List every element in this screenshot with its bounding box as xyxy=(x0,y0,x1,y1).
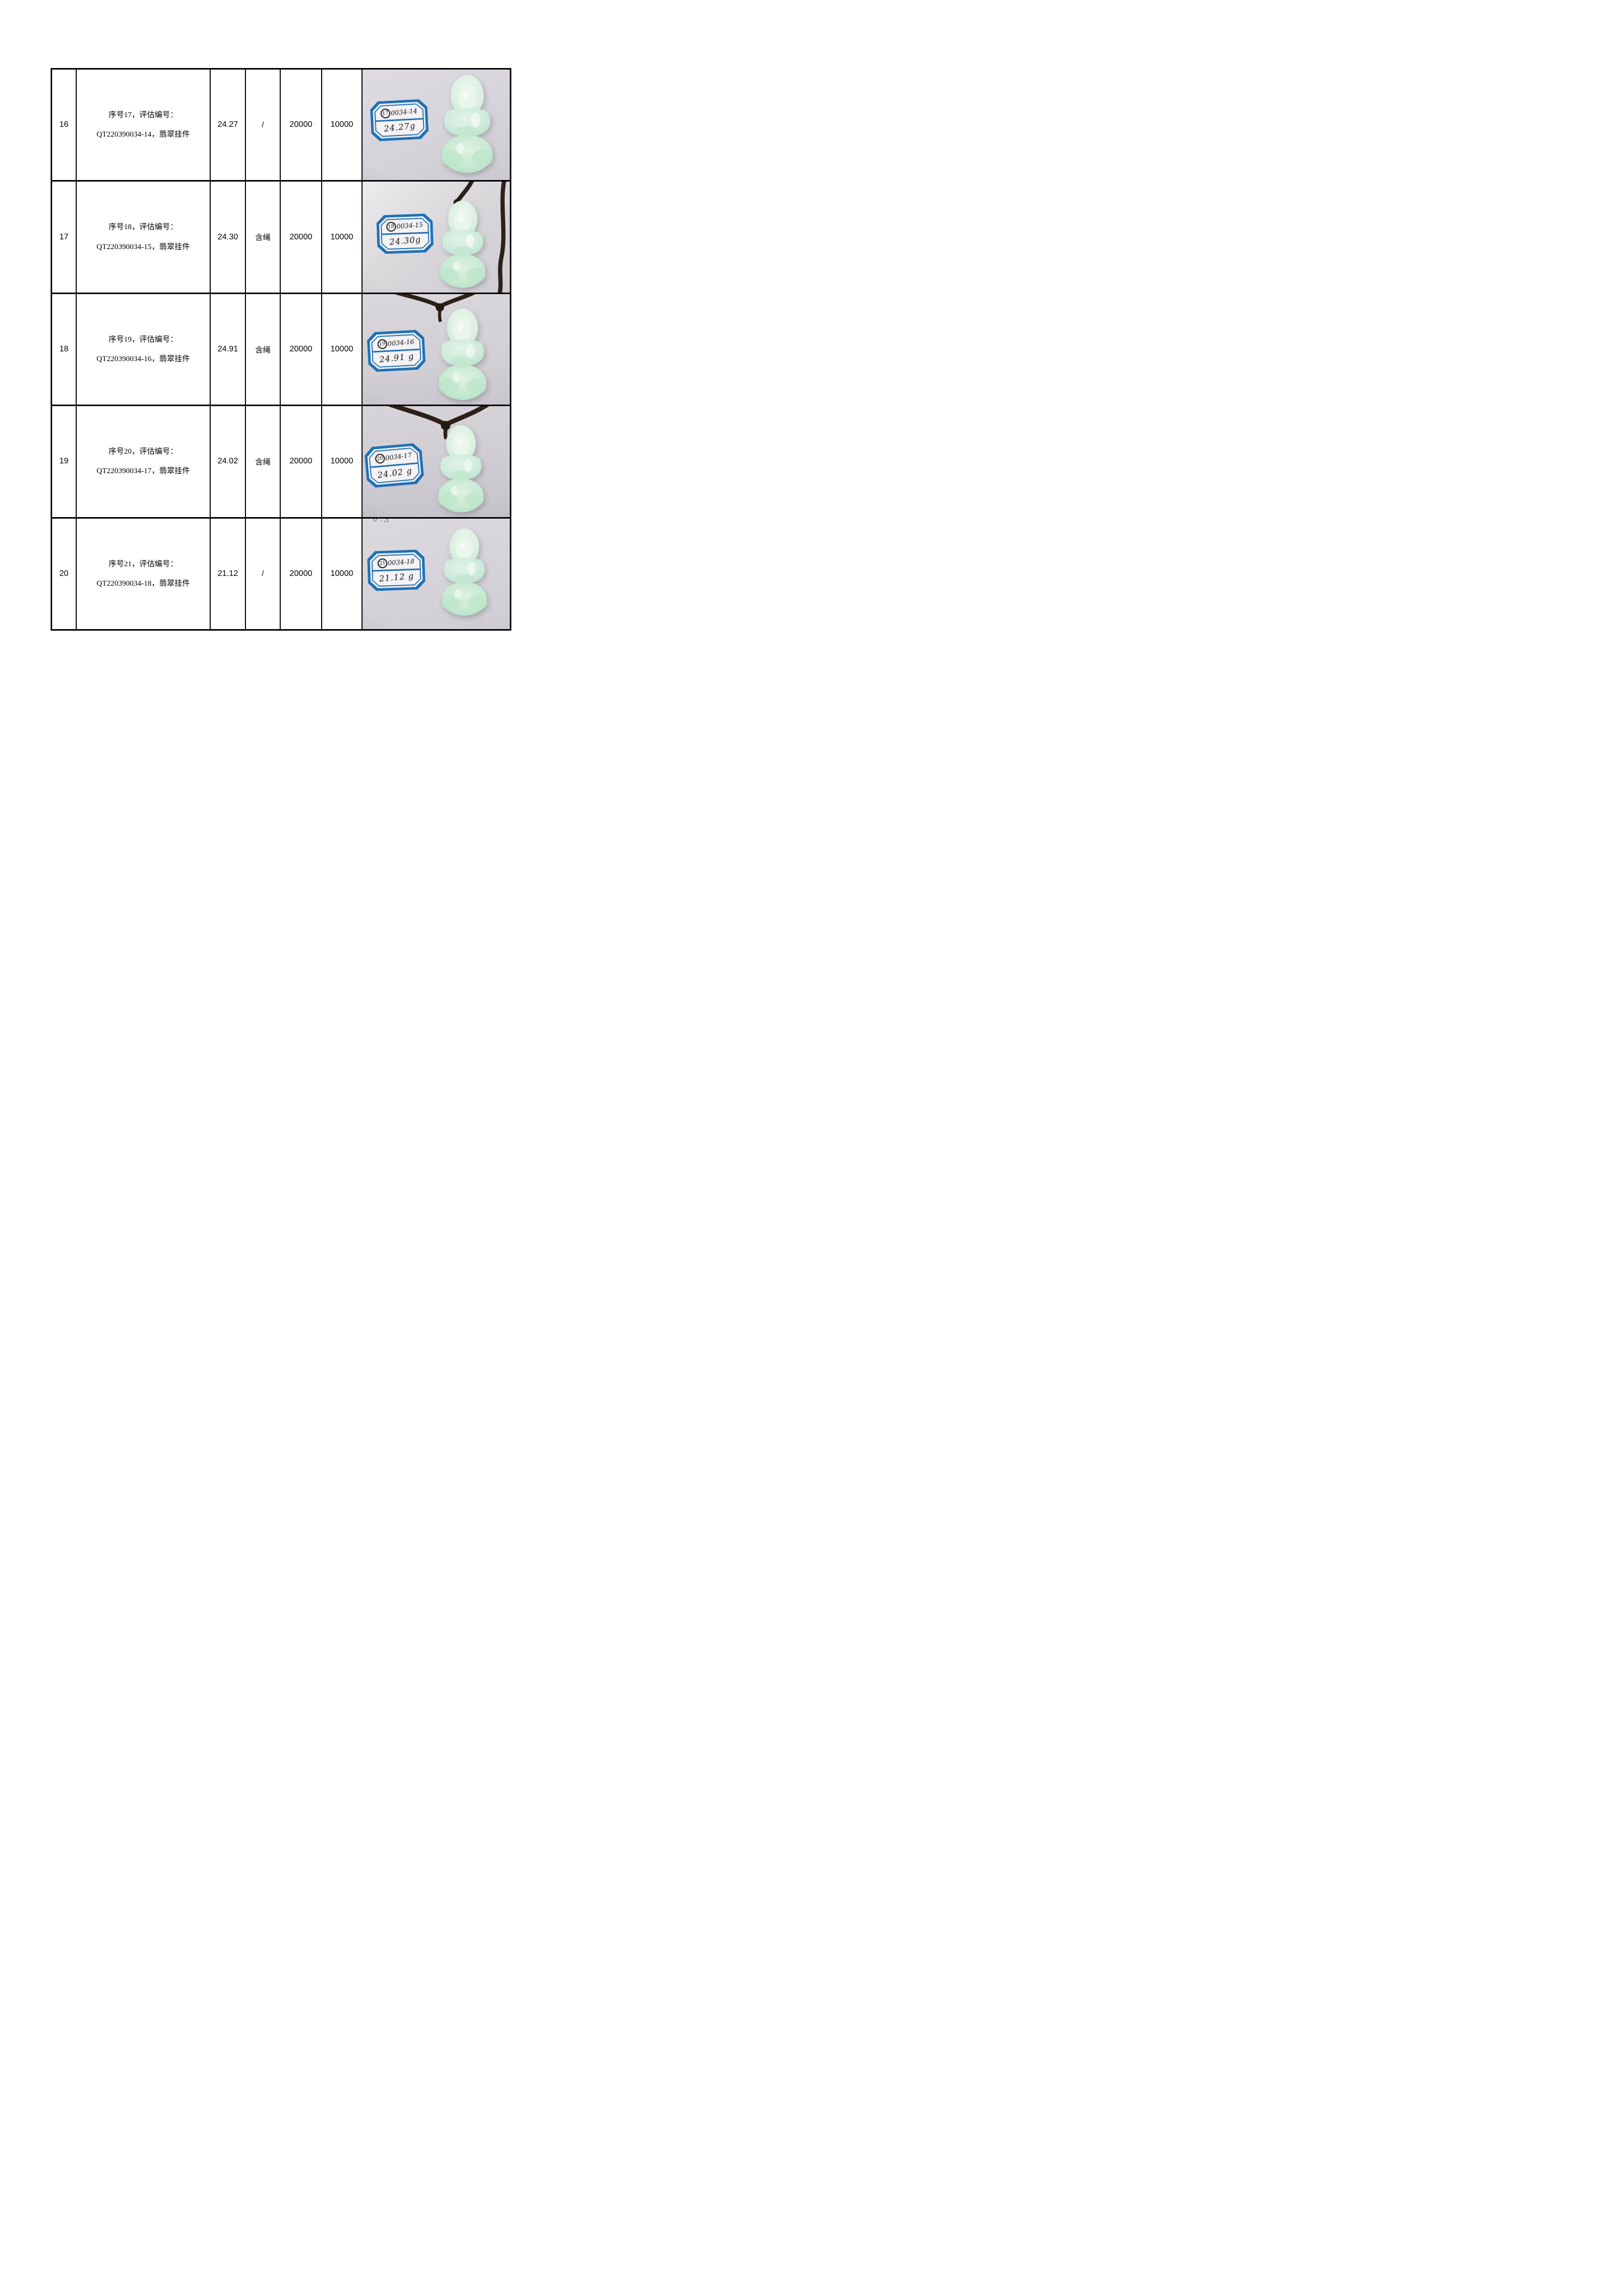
item-description-cell: 序号19，评估编号： QT220390034-16，翡翠挂件 xyxy=(77,294,211,405)
row-index-cell: 18 xyxy=(52,294,77,405)
table-row: 19 序号20，评估编号： QT220390034-17，翡翠挂件 24.02 … xyxy=(52,406,510,518)
tag-circled-number: 19 xyxy=(376,338,388,350)
weight-cell: 24.02 xyxy=(211,406,246,517)
weight-cell: 24.27 xyxy=(211,70,246,180)
price-cell-b: 10000 xyxy=(322,182,363,292)
description-line-1: 序号19，评估编号： xyxy=(108,330,177,349)
price-tag-label: 17 0034-14 24.27g xyxy=(370,99,429,142)
jade-pendant-image xyxy=(427,73,507,175)
row-index-cell: 20 xyxy=(52,519,77,629)
item-photo: 0.3 xyxy=(363,519,510,629)
weight-cell: 24.30 xyxy=(211,182,246,292)
price-cell-b: 10000 xyxy=(322,519,363,629)
row-index-cell: 19 xyxy=(52,406,77,517)
item-description-cell: 序号21，评估编号： QT220390034-18，翡翠挂件 xyxy=(77,519,211,629)
description-line-2: QT220390034-18，翡翠挂件 xyxy=(97,574,190,593)
rope-note-cell: / xyxy=(246,519,281,629)
appraisal-items-table: 16 序号17，评估编号： QT220390034-14，翡翠挂件 24.27 … xyxy=(51,68,511,631)
item-photo: 18 0034-15 24.30g xyxy=(363,182,510,292)
tag-circled-number: 21 xyxy=(377,558,389,569)
price-tag-label: 20 0034-17 24.02 g xyxy=(364,442,425,488)
table-row: 17 序号18，评估编号： QT220390034-15，翡翠挂件 24.30 … xyxy=(52,182,510,294)
appraisal-table-page: { "colors": { "tag_blue": "#2071b5", "ja… xyxy=(0,0,562,796)
rope-note-cell: / xyxy=(246,70,281,180)
jade-pendant-image xyxy=(427,526,501,618)
weight-cell: 24.91 xyxy=(211,294,246,405)
price-cell-a: 20000 xyxy=(281,294,322,405)
tag-item-code: 0034-14 xyxy=(391,107,418,117)
description-line-1: 序号18，评估编号： xyxy=(108,217,177,237)
weight-cell: 21.12 xyxy=(211,519,246,629)
description-line-1: 序号17，评估编号： xyxy=(108,105,177,125)
price-cell-a: 20000 xyxy=(281,519,322,629)
item-photo: 19 0034-16 24.91 g xyxy=(363,294,510,405)
price-tag-label: 18 0034-15 24.30g xyxy=(376,214,434,255)
description-line-2: QT220390034-17，翡翠挂件 xyxy=(97,461,190,481)
rope-note-cell: 含绳 xyxy=(246,406,281,517)
faint-handwriting-mark: 0.3 xyxy=(373,519,392,524)
jade-pendant-image xyxy=(424,198,501,291)
price-cell-a: 20000 xyxy=(281,70,322,180)
tag-circled-number: 17 xyxy=(379,107,391,119)
tag-item-code: 0034-17 xyxy=(385,451,412,462)
tag-weight: 24.30g xyxy=(381,231,429,250)
price-tag-label: 19 0034-16 24.91 g xyxy=(367,329,426,372)
photo-cell: 19 0034-16 24.91 g xyxy=(363,294,510,405)
jade-pendant-image xyxy=(421,306,504,403)
jade-pendant-image xyxy=(418,423,504,515)
description-line-2: QT220390034-16，翡翠挂件 xyxy=(97,349,190,369)
description-line-1: 序号20，评估编号： xyxy=(108,442,177,461)
rope-note-cell: 含绳 xyxy=(246,294,281,405)
item-description-cell: 序号20，评估编号： QT220390034-17，翡翠挂件 xyxy=(77,406,211,517)
photo-cell: 18 0034-15 24.30g xyxy=(363,182,510,292)
tag-circled-number: 20 xyxy=(374,453,386,465)
table-row: 16 序号17，评估编号： QT220390034-14，翡翠挂件 24.27 … xyxy=(52,70,510,182)
description-line-1: 序号21，评估编号： xyxy=(108,554,177,574)
tag-item-code: 0034-18 xyxy=(388,557,415,567)
price-tag-label: 21 0034-18 21.12 g xyxy=(367,549,426,591)
price-cell-a: 20000 xyxy=(281,182,322,292)
tag-circled-number: 18 xyxy=(386,221,397,233)
tag-item-code: 0034-15 xyxy=(396,221,423,231)
row-index-cell: 17 xyxy=(52,182,77,292)
tag-item-code: 0034-16 xyxy=(388,338,415,347)
photo-cell: 20 0034-17 24.02 g xyxy=(363,406,510,517)
row-index-cell: 16 xyxy=(52,70,77,180)
price-cell-b: 10000 xyxy=(322,294,363,405)
price-cell-a: 20000 xyxy=(281,406,322,517)
photo-cell: 17 0034-14 24.27g xyxy=(363,70,510,180)
description-line-2: QT220390034-15，翡翠挂件 xyxy=(97,237,190,257)
item-photo: 20 0034-17 24.02 g xyxy=(363,406,510,517)
table-row: 20 序号21，评估编号： QT220390034-18，翡翠挂件 21.12 … xyxy=(52,519,510,629)
table-row: 18 序号19，评估编号： QT220390034-16，翡翠挂件 24.91 … xyxy=(52,294,510,406)
price-cell-b: 10000 xyxy=(322,406,363,517)
photo-cell: 0.3 xyxy=(363,519,510,629)
item-description-cell: 序号18，评估编号： QT220390034-15，翡翠挂件 xyxy=(77,182,211,292)
description-line-2: QT220390034-14，翡翠挂件 xyxy=(97,125,190,144)
rope-note-cell: 含绳 xyxy=(246,182,281,292)
item-photo: 17 0034-14 24.27g xyxy=(363,70,510,180)
price-cell-b: 10000 xyxy=(322,70,363,180)
item-description-cell: 序号17，评估编号： QT220390034-14，翡翠挂件 xyxy=(77,70,211,180)
